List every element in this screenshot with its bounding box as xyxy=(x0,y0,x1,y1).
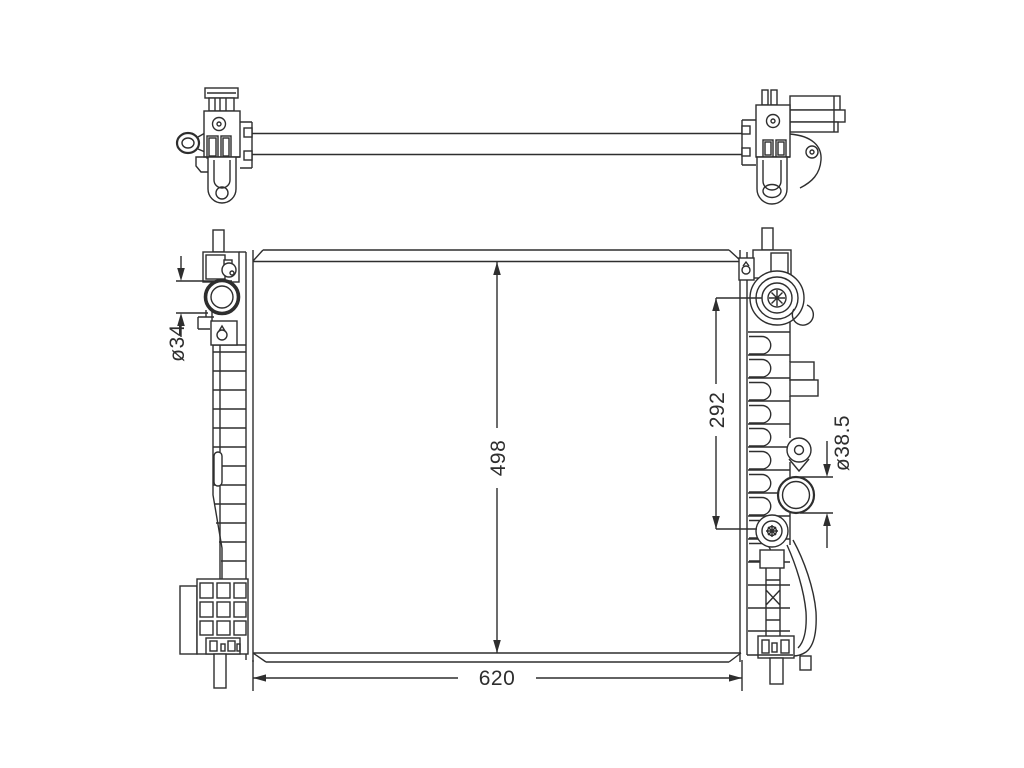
left-tank-bottom-pin xyxy=(214,654,226,688)
port-spacing-label: 292 xyxy=(706,392,729,429)
upper-left-bracket xyxy=(177,88,252,203)
dimensions: 498 620 292 ø34 xyxy=(166,256,854,691)
upper-right-bracket xyxy=(742,90,845,204)
core-width-label: 620 xyxy=(479,667,516,690)
dimension-core-height: 498 xyxy=(487,262,510,653)
right-tank xyxy=(739,228,818,684)
radiator-technical-drawing: 498 620 292 ø34 xyxy=(0,0,1024,768)
left-connector-block xyxy=(180,579,248,654)
inlet-diameter-label: ø34 xyxy=(166,324,189,362)
core-height-label: 498 xyxy=(487,440,510,477)
dimension-core-width: 620 xyxy=(253,660,742,691)
drain-sensor xyxy=(756,515,788,547)
left-tank xyxy=(180,230,253,688)
upper-crossmember xyxy=(177,88,845,204)
outlet-diameter-label: ø38.5 xyxy=(831,415,854,471)
outlet-port xyxy=(778,477,814,513)
crossmember-bar xyxy=(252,134,745,155)
right-tank-bottom-pin xyxy=(770,658,783,684)
radiator-diagram-svg: 498 620 292 ø34 xyxy=(0,0,1024,768)
